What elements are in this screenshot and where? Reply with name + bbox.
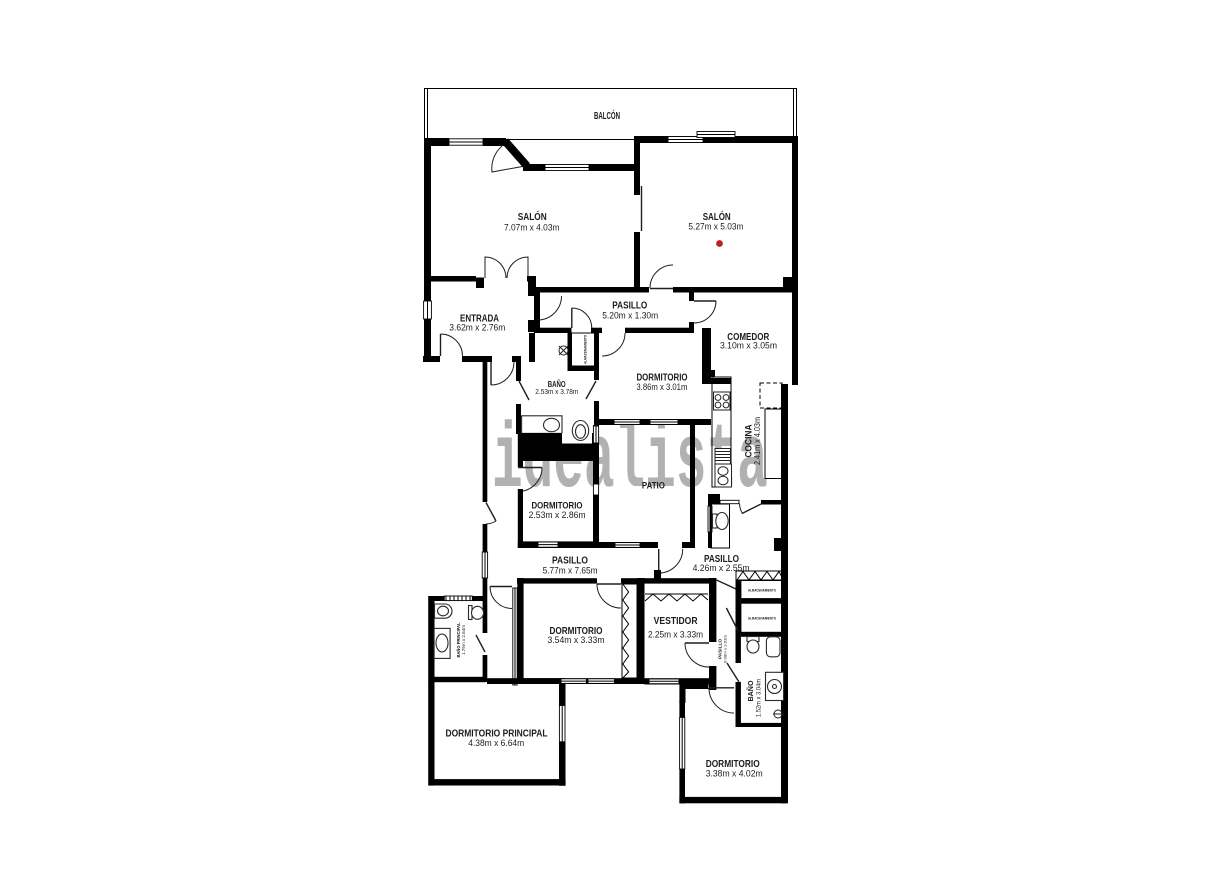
svg-text:5.20m x 1.30m: 5.20m x 1.30m (602, 311, 658, 322)
svg-text:ALMACENAMIENTO: ALMACENAMIENTO (748, 617, 776, 621)
svg-text:COCINA: COCINA (744, 424, 754, 458)
svg-text:4.26m x 2.55m: 4.26m x 2.55m (693, 563, 750, 574)
svg-text:1.52m x 3.04m: 1.52m x 3.04m (756, 679, 763, 717)
svg-text:PATIO: PATIO (642, 481, 665, 491)
svg-text:2.41m x 4.03m: 2.41m x 4.03m (753, 417, 762, 465)
svg-text:BAÑO: BAÑO (746, 680, 755, 701)
svg-text:3.62m x 2.76m: 3.62m x 2.76m (449, 323, 505, 334)
svg-text:ALMACENAMIENTO: ALMACENAMIENTO (583, 335, 588, 364)
svg-text:1.79m x 2.64m: 1.79m x 2.64m (461, 624, 466, 655)
svg-text:2.53m x 3.78m: 2.53m x 3.78m (535, 387, 578, 396)
svg-text:2.25m x 3.33m: 2.25m x 3.33m (648, 630, 703, 641)
svg-text:0.90m x 3.63m: 0.90m x 3.63m (723, 634, 728, 663)
svg-text:3.54m x 3.33m: 3.54m x 3.33m (548, 635, 605, 646)
svg-text:3.38m x 4.02m: 3.38m x 4.02m (706, 769, 763, 780)
svg-text:5.27m x 5.03m: 5.27m x 5.03m (688, 222, 743, 233)
svg-text:2.53m x 2.86m: 2.53m x 2.86m (529, 510, 586, 520)
svg-text:ALMACENAMIENTO: ALMACENAMIENTO (748, 589, 776, 593)
svg-text:7.07m x 4.03m: 7.07m x 4.03m (504, 223, 560, 234)
svg-text:SALÓN: SALÓN (518, 210, 547, 223)
svg-text:BALCÓN: BALCÓN (594, 109, 620, 122)
svg-text:VESTIDOR: VESTIDOR (654, 615, 698, 627)
svg-text:3.86m x 3.01m: 3.86m x 3.01m (636, 382, 687, 393)
svg-text:4.38m x 6.64m: 4.38m x 6.64m (468, 738, 524, 749)
svg-text:3.10m x 3.05m: 3.10m x 3.05m (720, 341, 777, 352)
svg-text:5.77m x 7.65m: 5.77m x 7.65m (543, 566, 598, 577)
